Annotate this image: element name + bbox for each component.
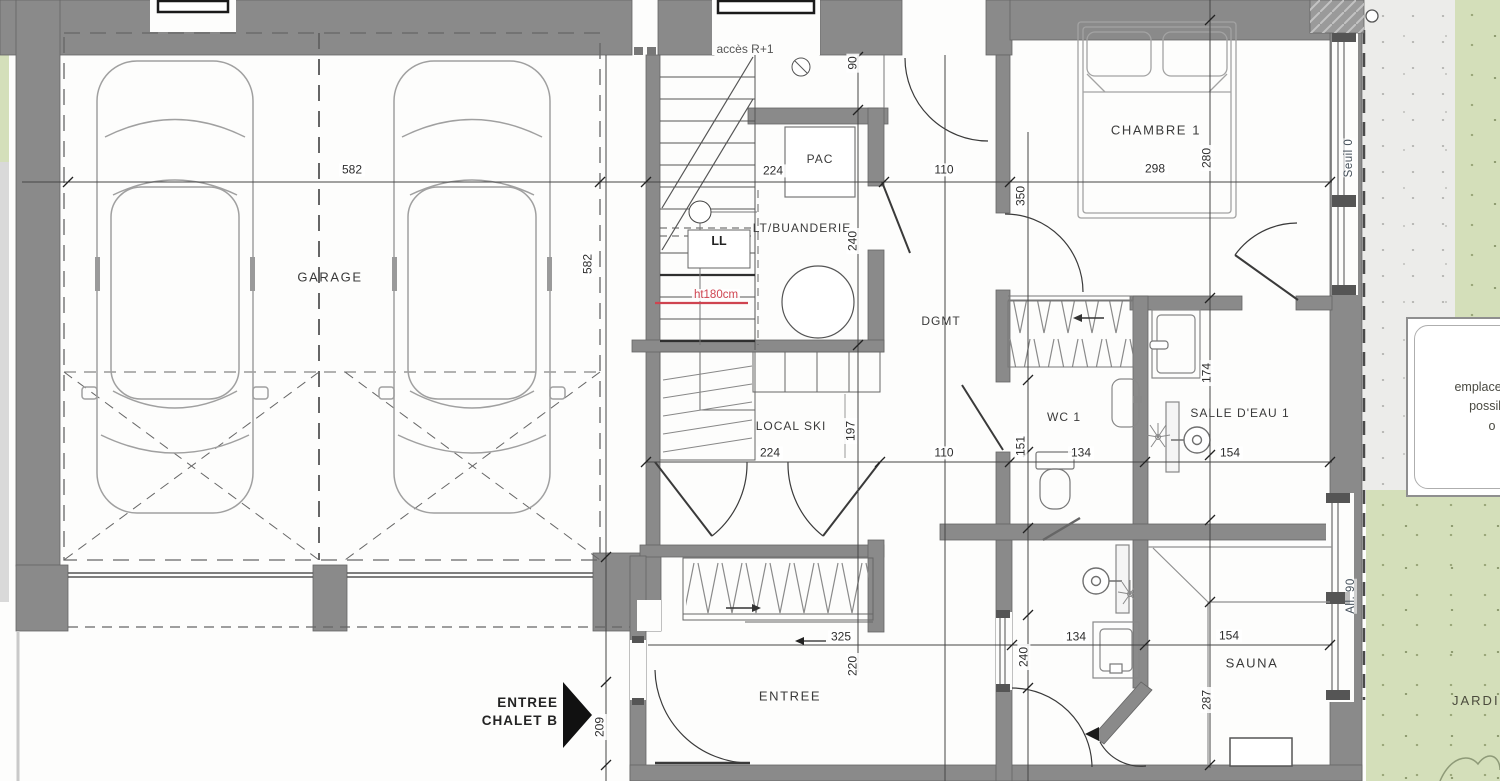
walls bbox=[0, 0, 1362, 781]
label-allege: All. 90 bbox=[1345, 578, 1357, 613]
label-washer: LL bbox=[711, 234, 726, 248]
room-label-garage: GARAGE bbox=[297, 270, 362, 285]
dim-hall-entry: 325 bbox=[828, 630, 854, 643]
label-height-note: ht180cm bbox=[692, 289, 740, 301]
label-seuil: Seuil 0 bbox=[1343, 139, 1355, 178]
emplacement-text: emplacement possible o bbox=[1414, 325, 1500, 489]
dim-entry-offset: 209 bbox=[593, 714, 606, 740]
dim-wc-return: 151 bbox=[1014, 433, 1027, 459]
emplacement-line1: emplacement bbox=[1454, 378, 1500, 397]
dim-garage-depth: 582 bbox=[581, 251, 594, 277]
room-label-buanderie: LT/BUANDERIE bbox=[753, 221, 851, 235]
room-label-chambre1: CHAMBRE 1 bbox=[1111, 123, 1201, 138]
dim-chambre-depth: 280 bbox=[1200, 145, 1213, 171]
label-jardin: JARDIN bbox=[1452, 693, 1500, 708]
entrance-line1: ENTREE bbox=[438, 694, 558, 712]
dim-wc-width: 134 bbox=[1068, 446, 1094, 459]
dim-sauna-width: 154 bbox=[1216, 629, 1242, 642]
dim-hall-mid: 110 bbox=[931, 446, 956, 459]
room-label-dgmt: DGMT bbox=[921, 314, 960, 328]
garage-markings bbox=[18, 33, 630, 781]
emplacement-line2: possible bbox=[1469, 397, 1500, 416]
emplacement-line3: o bbox=[1489, 417, 1496, 436]
dim-salle-eau-depth: 174 bbox=[1200, 360, 1213, 386]
room-label-wc1: WC 1 bbox=[1047, 410, 1081, 424]
room-label-sauna: SAUNA bbox=[1226, 656, 1279, 671]
dim-chambre-wall: 350 bbox=[1014, 183, 1027, 209]
floor-plan: emplacement possible o GARAGE LOCAL SKI … bbox=[0, 0, 1500, 781]
dim-garage-width: 582 bbox=[339, 163, 365, 176]
dim-shower-depth: 240 bbox=[1017, 644, 1030, 670]
ski-shelves bbox=[753, 352, 880, 458]
bed bbox=[1078, 22, 1236, 218]
entrance-line2: CHALET B bbox=[438, 712, 558, 730]
garage-cars bbox=[82, 61, 565, 513]
entrance-arrow-icon bbox=[563, 682, 592, 748]
dim-salle-eau-width: 154 bbox=[1217, 446, 1243, 459]
dim-buanderie-width: 224 bbox=[760, 164, 786, 177]
dim-local-ski-depth: 197 bbox=[844, 418, 857, 444]
room-label-pac: PAC bbox=[807, 152, 834, 166]
label-entrance-chalet-b: ENTREE CHALET B bbox=[438, 694, 558, 729]
dim-shower-width: 134 bbox=[1063, 630, 1089, 643]
dim-hall-top: 110 bbox=[931, 163, 956, 176]
dim-sauna-depth: 287 bbox=[1200, 687, 1213, 713]
emplacement-box: emplacement possible o bbox=[1406, 317, 1500, 497]
room-label-local-ski: LOCAL SKI bbox=[756, 419, 827, 433]
room-label-entree: ENTREE bbox=[759, 689, 821, 704]
label-acces-r1: accès R+1 bbox=[716, 42, 773, 56]
dim-stair-top: 90 bbox=[846, 53, 859, 72]
dim-chambre-width: 298 bbox=[1142, 162, 1168, 175]
dim-local-ski-width: 224 bbox=[757, 446, 783, 459]
dim-buanderie-depth: 240 bbox=[846, 228, 859, 254]
room-label-salle-eau1: SALLE D'EAU 1 bbox=[1190, 406, 1289, 420]
dim-entry-depth: 220 bbox=[846, 653, 859, 679]
